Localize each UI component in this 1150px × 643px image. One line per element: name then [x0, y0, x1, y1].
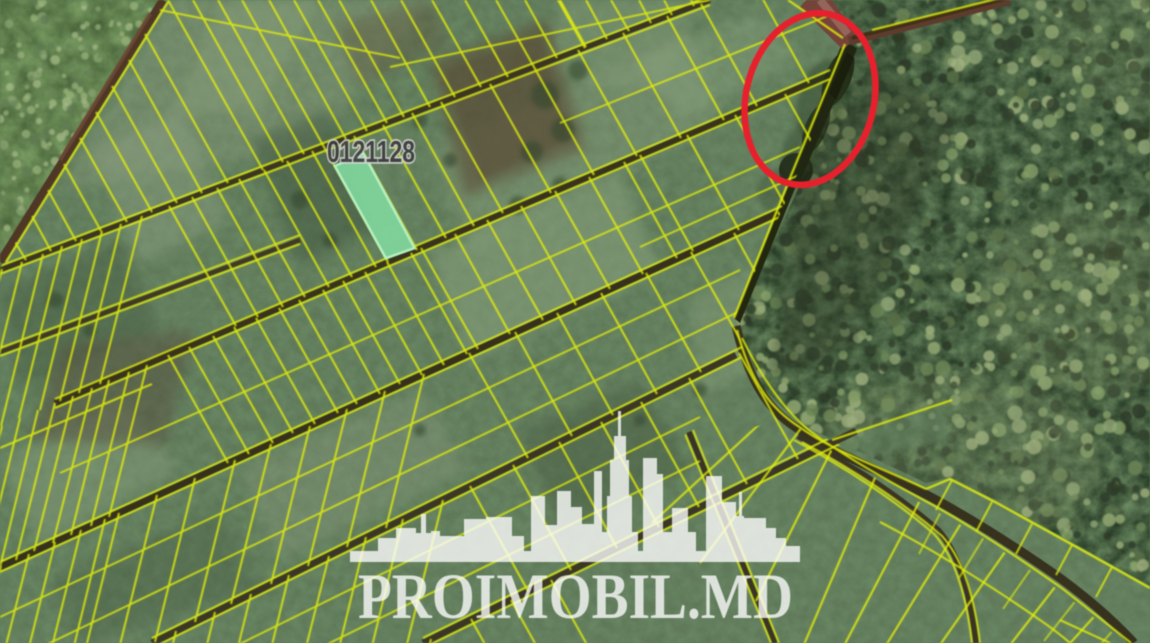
svg-text:0121128: 0121128 [327, 134, 415, 169]
svg-text:PROIMOBIL.MD: PROIMOBIL.MD [358, 561, 793, 633]
